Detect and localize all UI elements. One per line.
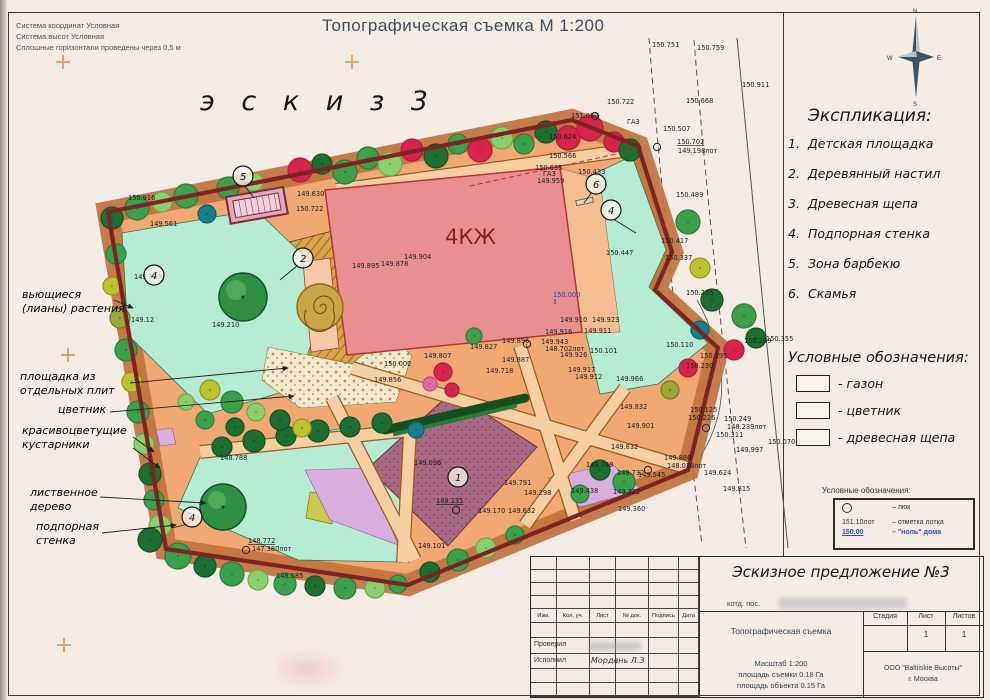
- title-block: Изм.Кол. уч.Лист№ док.ПодписьДата Провер…: [530, 556, 984, 698]
- explication-item: 5.Зона барбекю: [788, 256, 978, 271]
- elevation-label: 149.832: [611, 443, 638, 451]
- faint-stamp-mark: [278, 648, 348, 690]
- sheets-total: 1: [945, 629, 983, 639]
- elevation-label: 150.000: [553, 291, 580, 299]
- explication-title: Экспликация:: [808, 106, 978, 126]
- elevation-label: 149.901: [627, 422, 654, 430]
- map-annotation: цветник: [58, 403, 106, 416]
- elevation-label: 149.856: [374, 376, 401, 384]
- elevation-label: 149.878: [381, 260, 408, 268]
- blurred-settlement-name: [779, 598, 907, 609]
- callout-number: 2: [300, 254, 306, 265]
- elevation-label: 149.360: [618, 505, 645, 513]
- elevation-label: 150.751: [652, 41, 679, 49]
- building: 4КЖ: [303, 167, 620, 355]
- elevation-label: 149.12: [131, 316, 154, 324]
- elevation-label: 147.380лот: [252, 545, 292, 553]
- revision-col-header: Лист: [590, 609, 616, 623]
- legend-list: - газон- цветник- древесная щепа: [788, 375, 983, 446]
- elevation-label: 150.230: [686, 362, 713, 370]
- elevation-label: 150.337: [665, 254, 692, 262]
- elevation-label: 148.038лот: [667, 462, 707, 470]
- elevation-label: 151.039: [571, 112, 598, 120]
- made-by-label: Исполнил: [534, 657, 566, 664]
- elevation-label: 148.585: [276, 572, 303, 580]
- elevation-label: 149.997: [736, 446, 763, 454]
- elevation-label: 150.002: [384, 360, 411, 368]
- elevation-label: 150.110: [666, 341, 693, 349]
- settlement-label: котд. пос.: [727, 599, 760, 608]
- elevation-label: 149.923: [592, 316, 619, 324]
- explication-panel: Экспликация: 1.Детская площадка2.Деревян…: [788, 106, 978, 316]
- elevation-label: 150.759: [697, 44, 724, 52]
- legend-box-row: 151.10лот– отметка лотка: [842, 518, 973, 529]
- elevation-label: 149.170: [478, 507, 505, 515]
- callout-number: 1: [455, 473, 461, 484]
- legend-swatch: [796, 429, 830, 446]
- elevation-label: 150.195: [700, 352, 727, 360]
- elevation-label: 150.916: [128, 194, 155, 202]
- elevation-label: 149.798: [586, 461, 613, 469]
- elevation-label: 149.438: [571, 487, 598, 495]
- elevation-label: 148.788: [220, 454, 247, 462]
- checked-by-label: Проверил: [534, 641, 566, 648]
- elevation-label: 149.198лот: [678, 147, 718, 155]
- compass-n: N: [913, 9, 917, 15]
- compass-rose: N E S W: [887, 9, 941, 108]
- elevation-label: 150.489: [676, 191, 703, 199]
- elevation-label: 150.668: [686, 97, 713, 105]
- page-title: Топографическая съемка М 1:200: [322, 16, 604, 36]
- elevation-label: 148.772: [248, 537, 275, 545]
- callout-number: 6: [593, 180, 599, 191]
- callout-number: 4: [151, 271, 157, 282]
- stage-col: Стадия: [863, 613, 907, 620]
- elevation-label: 150.249: [724, 415, 751, 423]
- coordinate-system-notes: Система координат Условная Система высот…: [16, 20, 181, 53]
- elevation-label: 149.910: [560, 316, 587, 324]
- elevation-label: 150.355: [766, 335, 793, 343]
- legend-panel: Условные обозначения: - газон- цветник- …: [788, 350, 983, 456]
- gas-label: ГАЗ: [627, 118, 640, 126]
- callout-number: 5: [240, 172, 246, 183]
- made-by-name: Мордань Л.З: [591, 656, 644, 665]
- compass-e: E: [937, 56, 941, 62]
- legend-swatch: [796, 375, 830, 392]
- callout-number: 4: [189, 513, 195, 524]
- elevation-label: 150.911: [742, 81, 769, 89]
- elevation-label: 149.718: [486, 367, 513, 375]
- elevation-label: 149.926: [560, 351, 587, 359]
- elevation-label: 149.827: [470, 343, 497, 351]
- elevation-label: 150.635: [535, 164, 562, 172]
- note-line: Система координат Условная: [16, 20, 181, 31]
- manhole-legend-icon: [842, 503, 852, 513]
- explication-item: 1.Детская площадка: [788, 136, 978, 151]
- elevation-label: 149.235: [436, 497, 463, 505]
- elevation-label: 149.966: [616, 375, 643, 383]
- note-line: Система высот Условная: [16, 31, 181, 42]
- legend-box-row: 150.00– "ноль" дома: [842, 528, 973, 539]
- explication-item: 6.Скамья: [788, 286, 978, 301]
- elevation-label: 149.732: [617, 469, 644, 477]
- elevation-label: 150.447: [606, 249, 633, 257]
- sketch-number-label: э с к и з 3: [200, 86, 437, 117]
- scanned-survey-sheet: 4КЖ ГАЗ: [0, 0, 990, 700]
- legend-box: – люк151.10лот– отметка лотка150.00– "но…: [833, 498, 975, 550]
- legend-row: - древесная щепа: [796, 429, 983, 446]
- document-title: Топографическая съемка: [699, 611, 863, 651]
- legend-box-title: Условные обозначения:: [822, 486, 911, 495]
- building-label: 4КЖ: [445, 225, 496, 249]
- note-line: Сплошные горизонтали проведены через 0,5…: [16, 42, 181, 53]
- legend-title: Условные обозначения:: [788, 350, 983, 366]
- elevation-label: 149.911: [584, 327, 611, 335]
- sheet-col: Лист: [907, 613, 945, 620]
- elevation-label: 149.815: [723, 485, 750, 493]
- elevation-label: 149.887: [502, 356, 529, 364]
- elevation-label: 149.807: [424, 352, 451, 360]
- elevation-label: 149.630: [297, 190, 324, 198]
- elevation-label: 150.417: [661, 237, 688, 245]
- sheet-number: 1: [907, 629, 945, 639]
- elevation-label: 150.624: [549, 133, 576, 141]
- explication-item: 3.Древесная щепа: [788, 196, 978, 211]
- elevation-label: 150.226: [688, 414, 715, 422]
- scale-info: Масштаб 1:200 площадь съемки 0.18 Га пло…: [699, 651, 863, 697]
- revision-col-header: Дата: [679, 609, 699, 623]
- explication-list: 1.Детская площадка2.Деревянный настил3.Д…: [788, 136, 978, 301]
- manhole-symbol: [653, 143, 660, 150]
- revision-col-header: Кол. уч.: [557, 609, 590, 623]
- elevation-label: 149.791: [504, 479, 531, 487]
- elevation-label: 149.101: [418, 542, 445, 550]
- elevation-label: 150.566: [549, 152, 576, 160]
- legend-row: - цветник: [796, 402, 983, 419]
- compass-w: W: [887, 56, 893, 62]
- map-annotation: площадка изотдельных плит: [20, 370, 115, 397]
- elevation-label: 150.311: [716, 431, 743, 439]
- elevation-label: 149.959: [537, 177, 564, 185]
- elevation-label: 149.895: [352, 262, 379, 270]
- elevation-label: 150.507: [663, 125, 690, 133]
- elevation-label: 150.205: [686, 289, 713, 297]
- elevation-label: 149.916: [545, 328, 572, 336]
- elevation-label: 150.702: [677, 138, 704, 146]
- explication-item: 4.Подпорная стенка: [788, 226, 978, 241]
- callout-number: 4: [608, 206, 614, 217]
- elevation-label: 149.624: [704, 469, 731, 477]
- elevation-label: 149.210: [212, 321, 239, 329]
- elevation-label: 148.239лот: [727, 423, 767, 431]
- elevation-label: 150.101: [590, 347, 617, 355]
- elevation-label: 149.832: [620, 403, 647, 411]
- elevation-label: 150.125: [690, 406, 717, 414]
- blurred-name: [589, 642, 641, 651]
- explication-item: 2.Деревянный настил: [788, 166, 978, 181]
- map-annotation: красивоцветущиекустарники: [22, 424, 127, 451]
- elevation-label: 149.722: [613, 488, 640, 496]
- legend-swatch: [796, 402, 830, 419]
- elevation-label: 149.096: [414, 459, 441, 467]
- elevation-label: 149.298: [524, 489, 551, 497]
- sheets-col: Листов: [945, 613, 983, 620]
- elevation-label: 149.886: [664, 454, 691, 462]
- revision-col-header: Изм.: [531, 609, 557, 623]
- legend-box-row: – люк: [842, 503, 973, 518]
- legend-row: - газон: [796, 375, 983, 392]
- revision-col-header: Подпись: [649, 609, 679, 623]
- revision-col-header: № док.: [616, 609, 649, 623]
- elevation-label: 149.561: [150, 220, 177, 228]
- elevation-label: 150.722: [607, 98, 634, 106]
- map-annotation: подпорнаястенка: [36, 520, 99, 547]
- elevation-label: 149.632: [508, 507, 535, 515]
- elevation-label: 150.722: [296, 205, 323, 213]
- sketch-proposal-title: Эскизное предложение №3: [699, 563, 983, 581]
- elevation-label: 149.912: [575, 373, 602, 381]
- map-annotation: лиственноедерево: [29, 486, 98, 513]
- company-info: ООО "Baltiiskie Высоты" г. Москва: [863, 651, 983, 697]
